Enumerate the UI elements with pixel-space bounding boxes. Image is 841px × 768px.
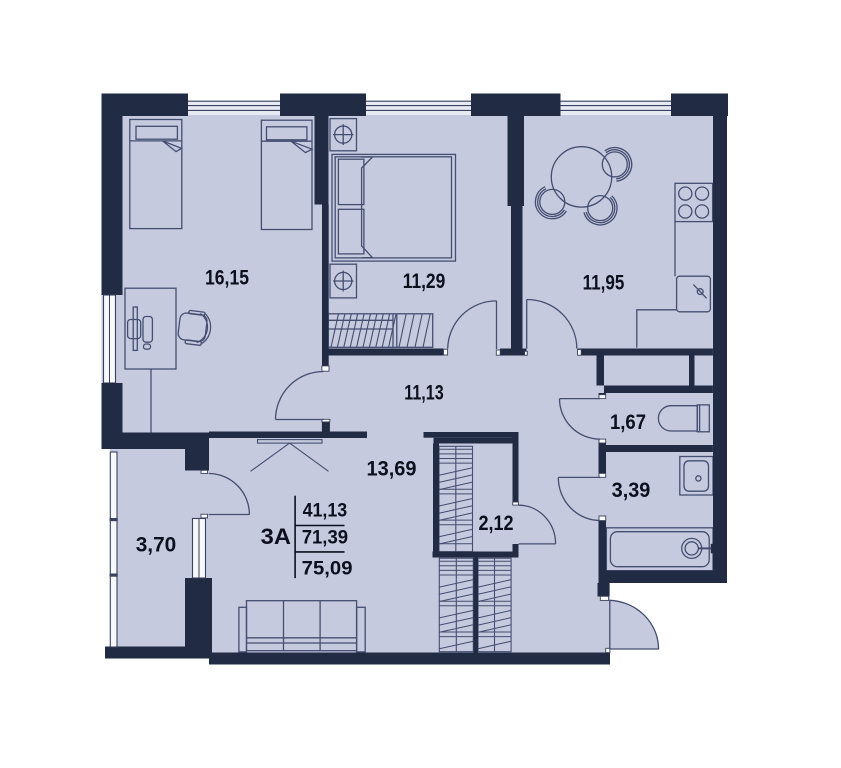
svg-text:71,39: 71,39 xyxy=(302,527,348,548)
svg-text:3,70: 3,70 xyxy=(136,532,177,556)
svg-text:75,09: 75,09 xyxy=(302,559,353,580)
svg-text:1,67: 1,67 xyxy=(610,410,646,434)
svg-text:41,13: 41,13 xyxy=(303,501,348,522)
svg-text:13,69: 13,69 xyxy=(367,457,417,481)
svg-text:11,95: 11,95 xyxy=(583,271,625,295)
svg-text:2,12: 2,12 xyxy=(478,511,513,535)
svg-text:11,29: 11,29 xyxy=(403,269,446,293)
svg-text:16,15: 16,15 xyxy=(205,265,249,289)
svg-text:11,13: 11,13 xyxy=(404,381,444,405)
svg-text:3,39: 3,39 xyxy=(612,478,651,502)
svg-text:3A: 3A xyxy=(261,524,291,549)
